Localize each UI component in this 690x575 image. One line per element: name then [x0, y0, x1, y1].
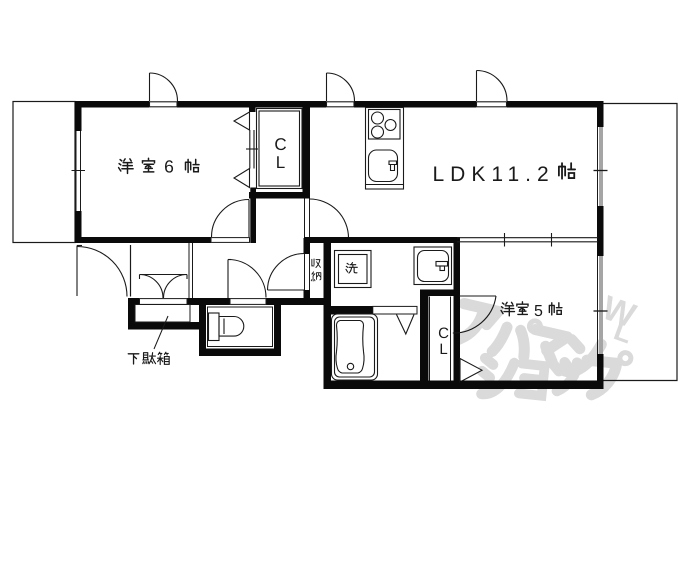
svg-text:6: 6 — [164, 157, 174, 177]
svg-text:C: C — [438, 325, 449, 342]
svg-text:L: L — [276, 153, 285, 172]
svg-text:5: 5 — [534, 303, 543, 320]
svg-text:L: L — [439, 341, 447, 358]
svg-text:C: C — [274, 135, 286, 154]
svg-text:LDK11.2: LDK11.2 — [433, 163, 555, 186]
